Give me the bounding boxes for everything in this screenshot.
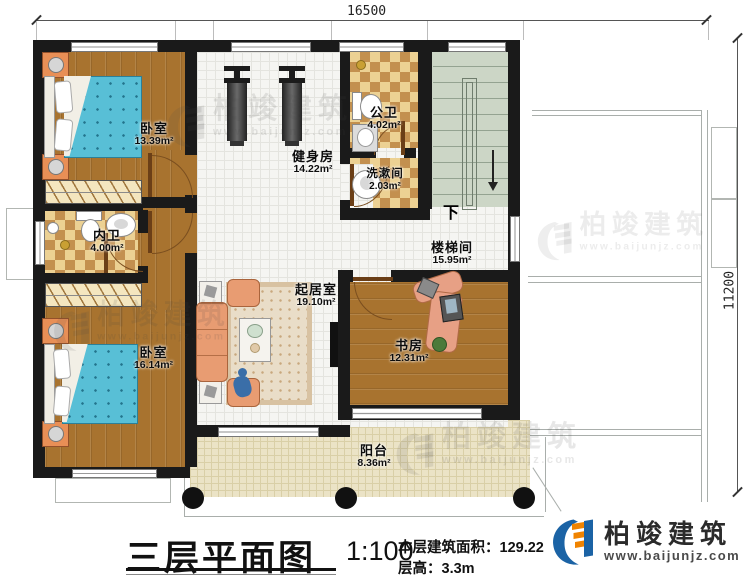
terrace-railing <box>701 110 702 502</box>
floor-area-line: 本层建筑面积：129.22m² <box>398 536 562 557</box>
nightstand <box>42 52 69 78</box>
wardrobe <box>45 283 142 307</box>
stair-direction-label: 下 <box>443 199 459 223</box>
door-leaf <box>353 277 393 281</box>
title-underline <box>126 574 336 575</box>
extension-line <box>36 21 37 40</box>
eave-outline <box>55 478 171 503</box>
terrace-railing <box>528 276 702 277</box>
window <box>35 221 45 265</box>
window <box>510 216 520 262</box>
wall <box>404 148 416 158</box>
pillow <box>54 118 74 151</box>
room-label-living-room: 起居室19.10m² <box>288 283 344 309</box>
exercise-machine-icon <box>230 141 244 146</box>
window <box>352 408 482 419</box>
floor-plan-canvas: 16500 11200 下 <box>0 0 750 583</box>
nightstand <box>42 318 69 344</box>
stair-stringer-inner <box>466 82 473 206</box>
room-label-public-bath: 公卫4.02m² <box>360 106 408 132</box>
room-label-bedroom-top: 卧室13.39m² <box>128 122 180 148</box>
room-label-bedroom-bottom: 卧室16.14m² <box>126 346 181 372</box>
exercise-machine-icon <box>227 83 247 141</box>
faucet-icon <box>356 60 366 70</box>
tv-icon <box>330 322 338 367</box>
watermark: 柏竣建筑www.baijunjz.com <box>534 212 709 269</box>
monitor-icon <box>439 294 463 323</box>
column <box>513 487 535 509</box>
extension-line <box>523 21 524 40</box>
terrace-railing <box>532 110 702 111</box>
column <box>335 487 357 509</box>
room-label-inner-bath: 内卫4.00m² <box>83 229 131 255</box>
nightstand <box>42 421 69 447</box>
wardrobe <box>45 180 142 204</box>
room-label-stairwell: 楼梯间15.95m² <box>422 241 482 267</box>
exercise-machine-icon <box>285 141 299 146</box>
armchair <box>227 279 260 307</box>
sliding-door <box>218 427 319 437</box>
extension-line <box>175 21 176 40</box>
wall <box>140 197 185 208</box>
extension-line <box>331 21 332 40</box>
title-underline <box>126 568 336 571</box>
sofa <box>196 302 228 382</box>
top-dimension-label: 16500 <box>347 4 386 19</box>
wall <box>33 273 148 283</box>
window <box>339 42 404 52</box>
terrace-pier <box>711 199 737 268</box>
pillow <box>53 348 72 379</box>
top-dimension-line <box>36 20 709 21</box>
window <box>448 42 506 52</box>
room-label-balcony: 阳台8.36m² <box>350 444 398 470</box>
eave-line <box>184 516 546 517</box>
right-dimension-label: 11200 <box>723 261 738 321</box>
extension-line <box>213 21 214 40</box>
down-arrow-icon <box>488 182 498 191</box>
pillow <box>54 80 74 113</box>
terrace-railing <box>707 110 708 502</box>
brand-logo: 柏竣建筑 www.baijunjz.com <box>544 512 744 572</box>
pillow <box>53 385 72 416</box>
floor-height-value: 3.3m <box>442 561 475 577</box>
eave-line <box>545 437 546 517</box>
brand-website: www.baijunjz.com <box>604 548 740 563</box>
exercise-machine-icon <box>282 83 302 141</box>
room-label-washroom: 洗漱间2.03m² <box>356 168 414 192</box>
room-label-gym: 健身房14.22m² <box>280 150 346 176</box>
side-table <box>199 381 222 404</box>
floor-height-line: 层高：3.3m <box>398 557 475 578</box>
corner-diagonal <box>532 467 561 511</box>
floor-height-label: 层高： <box>398 561 442 577</box>
exterior-platform <box>6 208 34 280</box>
wall <box>185 52 197 467</box>
room-label-study: 书房12.31m² <box>383 339 435 365</box>
extension-line <box>708 21 709 40</box>
extension-line <box>427 21 428 40</box>
coffee-table <box>239 318 271 362</box>
shower-fitting-icon <box>60 240 70 250</box>
terrace-railing <box>532 115 702 116</box>
terrace-pier <box>711 127 737 199</box>
terrace-railing <box>528 282 702 283</box>
wall <box>420 52 432 209</box>
stair-walkline <box>492 150 494 182</box>
terrace-railing <box>528 429 702 430</box>
side-table <box>199 281 222 304</box>
brand-text: 柏竣建筑 www.baijunjz.com <box>604 521 740 563</box>
window <box>231 42 311 52</box>
brand-name: 柏竣建筑 <box>604 521 740 548</box>
floor-drain-icon <box>47 222 59 234</box>
floor-area-label: 本层建筑面积： <box>398 540 500 556</box>
terrace-railing <box>528 435 702 436</box>
brand-logo-icon <box>534 212 574 269</box>
column <box>182 487 204 509</box>
wall <box>340 208 430 220</box>
brand-logo-icon <box>548 514 596 570</box>
wall <box>138 210 148 233</box>
window <box>71 42 158 52</box>
stair-tread <box>433 66 508 67</box>
window <box>72 469 157 478</box>
